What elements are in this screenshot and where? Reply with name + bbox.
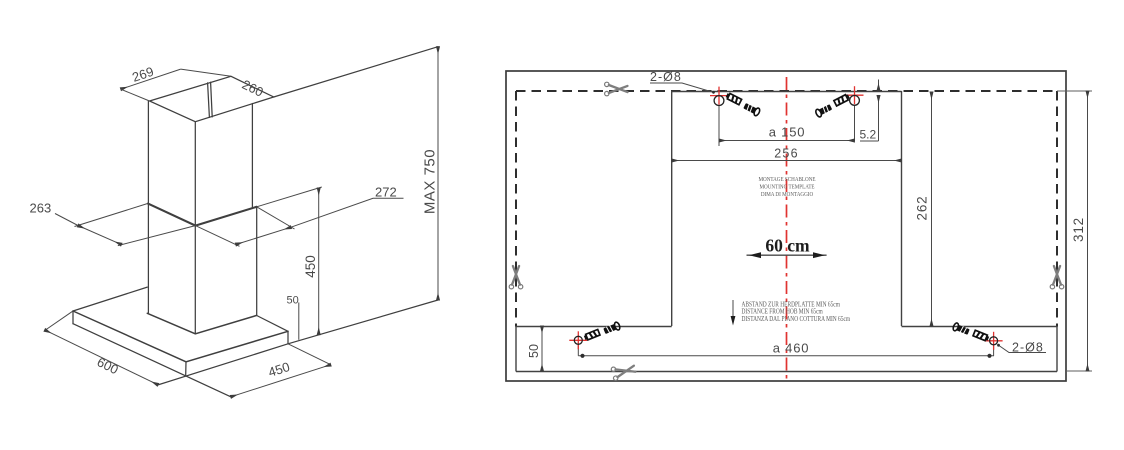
svg-text:450: 450: [266, 359, 291, 380]
svg-text:MAX 750: MAX 750: [422, 149, 439, 214]
svg-text:DIMA DI MONTAGGIO: DIMA DI MONTAGGIO: [761, 192, 813, 199]
svg-text:263: 263: [30, 201, 52, 216]
svg-text:260: 260: [240, 77, 266, 100]
svg-text:a 460: a 460: [773, 341, 810, 356]
svg-text:5.2: 5.2: [860, 128, 877, 142]
svg-text:2-Ø8: 2-Ø8: [650, 70, 682, 84]
svg-text:60 cm: 60 cm: [765, 236, 810, 256]
svg-text:450: 450: [303, 255, 318, 278]
svg-text:MOUNTING TEMPLATE: MOUNTING TEMPLATE: [759, 184, 815, 191]
svg-text:50: 50: [527, 344, 541, 358]
svg-text:2-Ø8: 2-Ø8: [1012, 341, 1044, 355]
svg-text:256: 256: [774, 146, 798, 160]
svg-text:50: 50: [287, 295, 299, 307]
svg-text:DISTANZA DAL PIANO COTTURA MIN: DISTANZA DAL PIANO COTTURA MIN 65cm: [742, 317, 851, 324]
svg-text:600: 600: [95, 354, 121, 377]
svg-text:312: 312: [1071, 217, 1086, 242]
svg-text:a 150: a 150: [769, 125, 806, 140]
svg-text:269: 269: [130, 64, 155, 85]
svg-text:MONTAGE SCHABLONE: MONTAGE SCHABLONE: [758, 177, 815, 184]
svg-text:DISTANCE FROM HOB MIN 65cm: DISTANCE FROM HOB MIN 65cm: [742, 309, 823, 316]
svg-text:ABSTAND ZUR HERDPLATTE MIN 65c: ABSTAND ZUR HERDPLATTE MIN 65cm: [742, 302, 841, 309]
svg-text:272: 272: [375, 185, 397, 200]
svg-text:262: 262: [915, 196, 930, 221]
